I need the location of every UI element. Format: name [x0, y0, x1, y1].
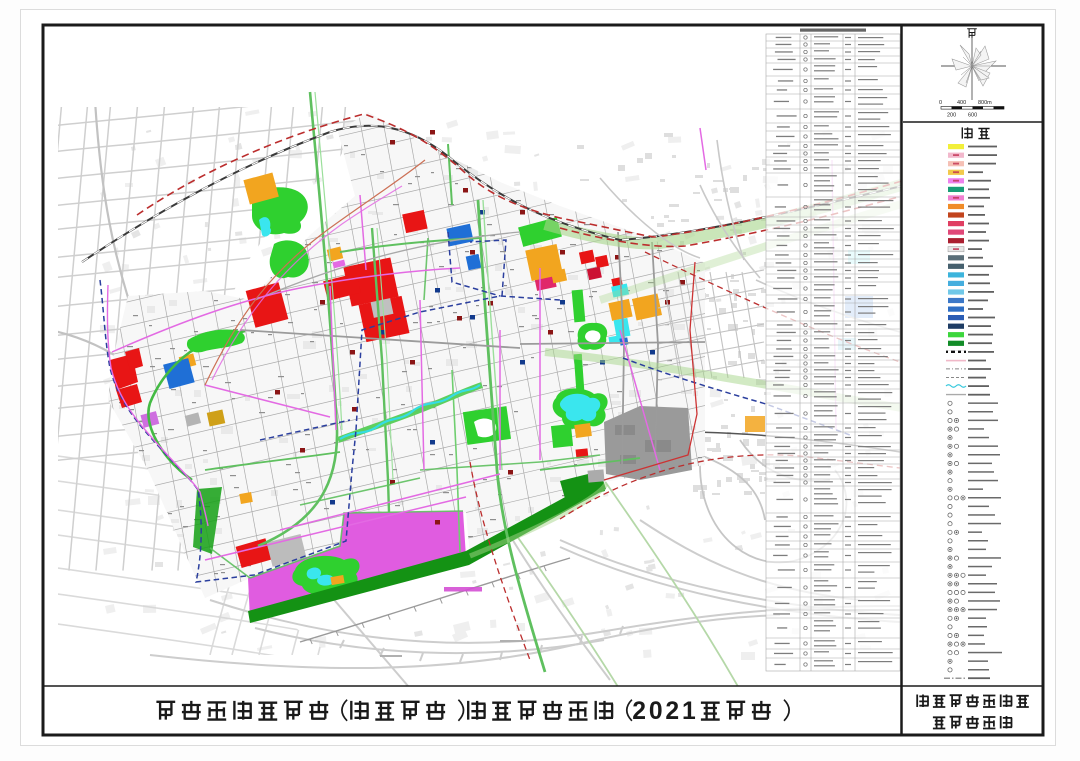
svg-text:800m: 800m [978, 100, 992, 106]
svg-text:400: 400 [957, 100, 966, 106]
svg-text:2: 2 [665, 698, 679, 725]
svg-text:1: 1 [682, 698, 696, 725]
svg-text:0: 0 [649, 698, 663, 725]
svg-text:600: 600 [968, 113, 977, 119]
svg-text:0: 0 [939, 100, 942, 106]
svg-text:200: 200 [947, 113, 956, 119]
svg-text:2: 2 [632, 698, 646, 725]
